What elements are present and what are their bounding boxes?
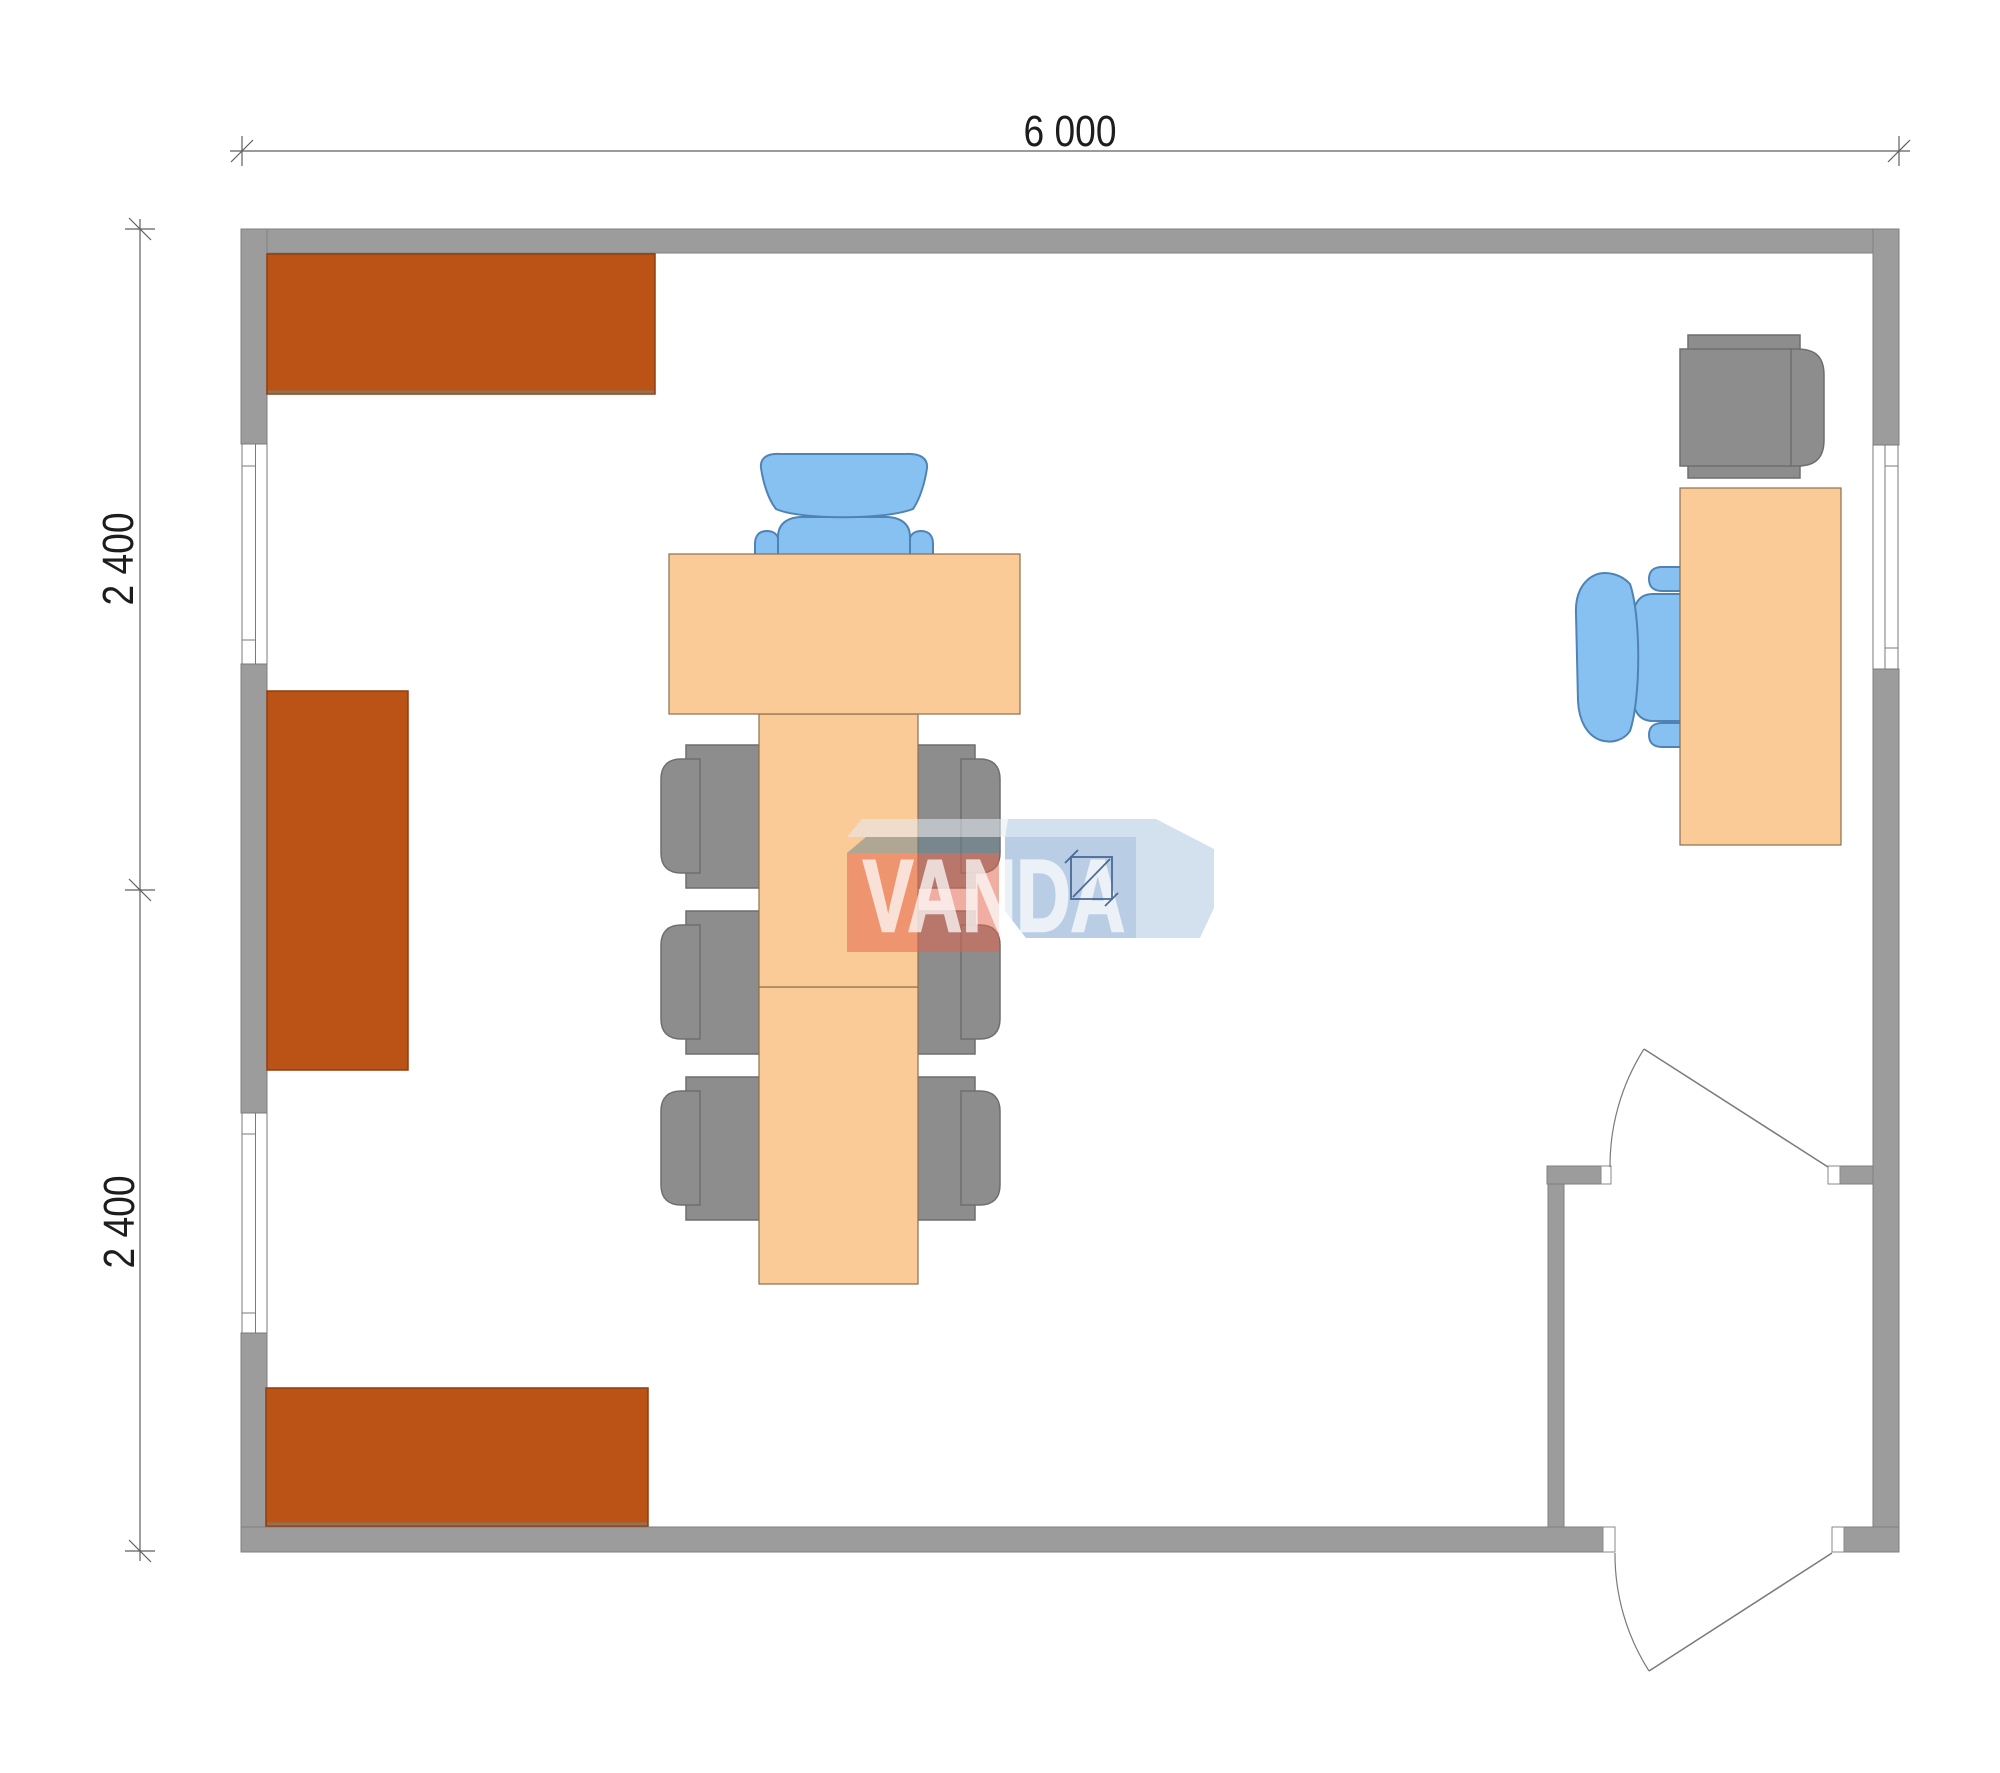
- svg-text:6 000: 6 000: [1024, 107, 1117, 156]
- svg-text:2 400: 2 400: [95, 1176, 144, 1269]
- svg-text:VANDA: VANDA: [863, 839, 1125, 953]
- svg-text:2 400: 2 400: [94, 513, 143, 606]
